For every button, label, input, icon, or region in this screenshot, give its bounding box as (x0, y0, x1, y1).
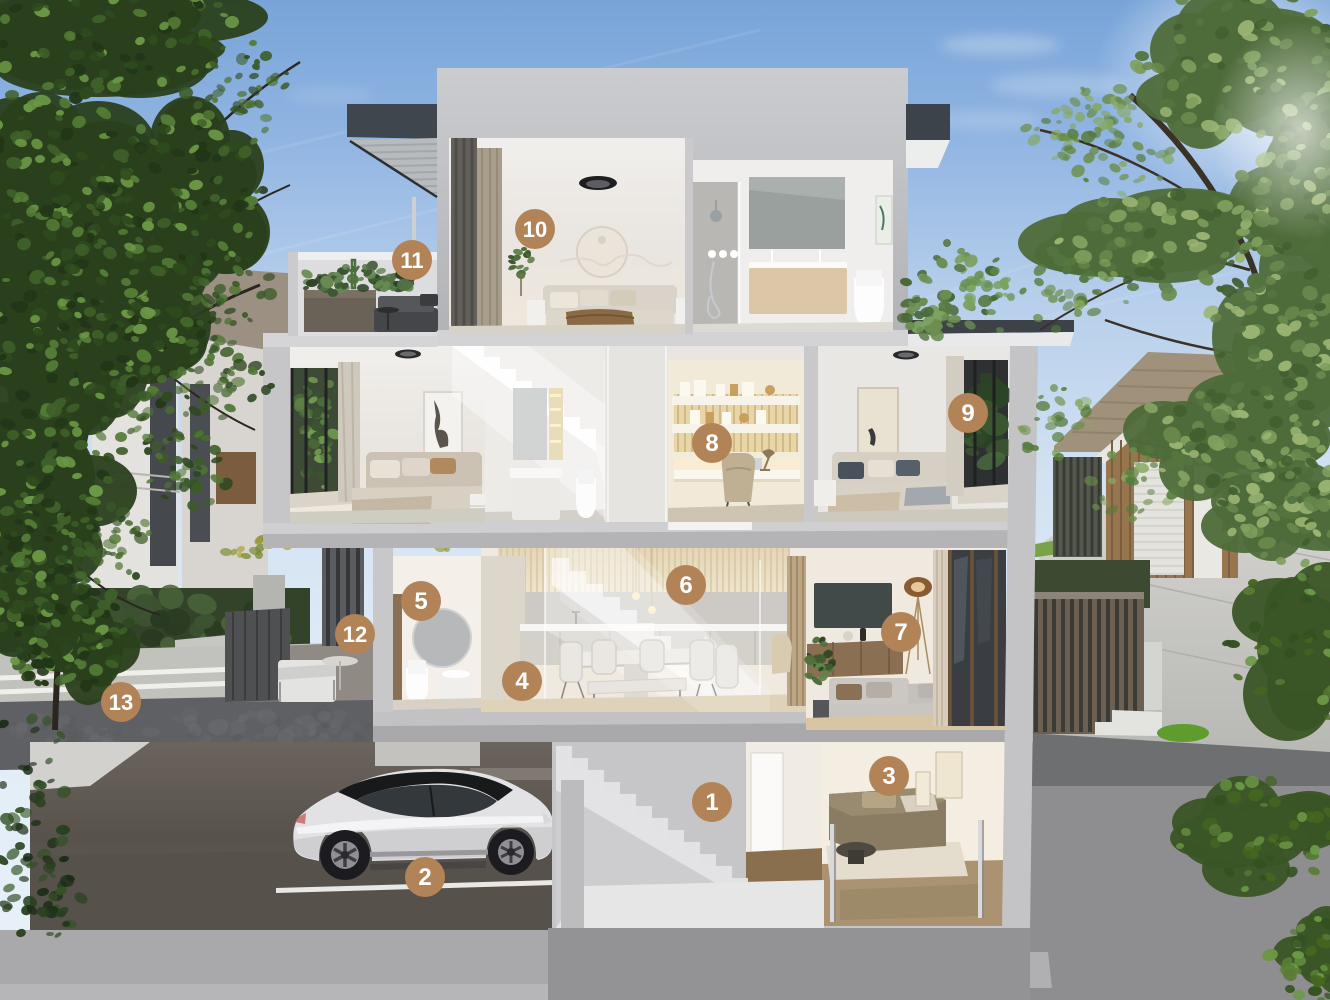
svg-text:10: 10 (523, 217, 547, 242)
svg-text:2: 2 (418, 864, 431, 891)
svg-text:6: 6 (679, 572, 692, 599)
svg-text:3: 3 (882, 763, 895, 790)
svg-text:1: 1 (705, 789, 718, 816)
svg-text:5: 5 (414, 588, 427, 615)
svg-text:4: 4 (515, 668, 529, 695)
svg-text:12: 12 (343, 622, 367, 647)
svg-text:13: 13 (109, 690, 133, 715)
svg-text:9: 9 (961, 400, 974, 427)
svg-text:11: 11 (400, 248, 423, 273)
svg-text:7: 7 (894, 619, 907, 646)
svg-text:8: 8 (705, 430, 718, 457)
